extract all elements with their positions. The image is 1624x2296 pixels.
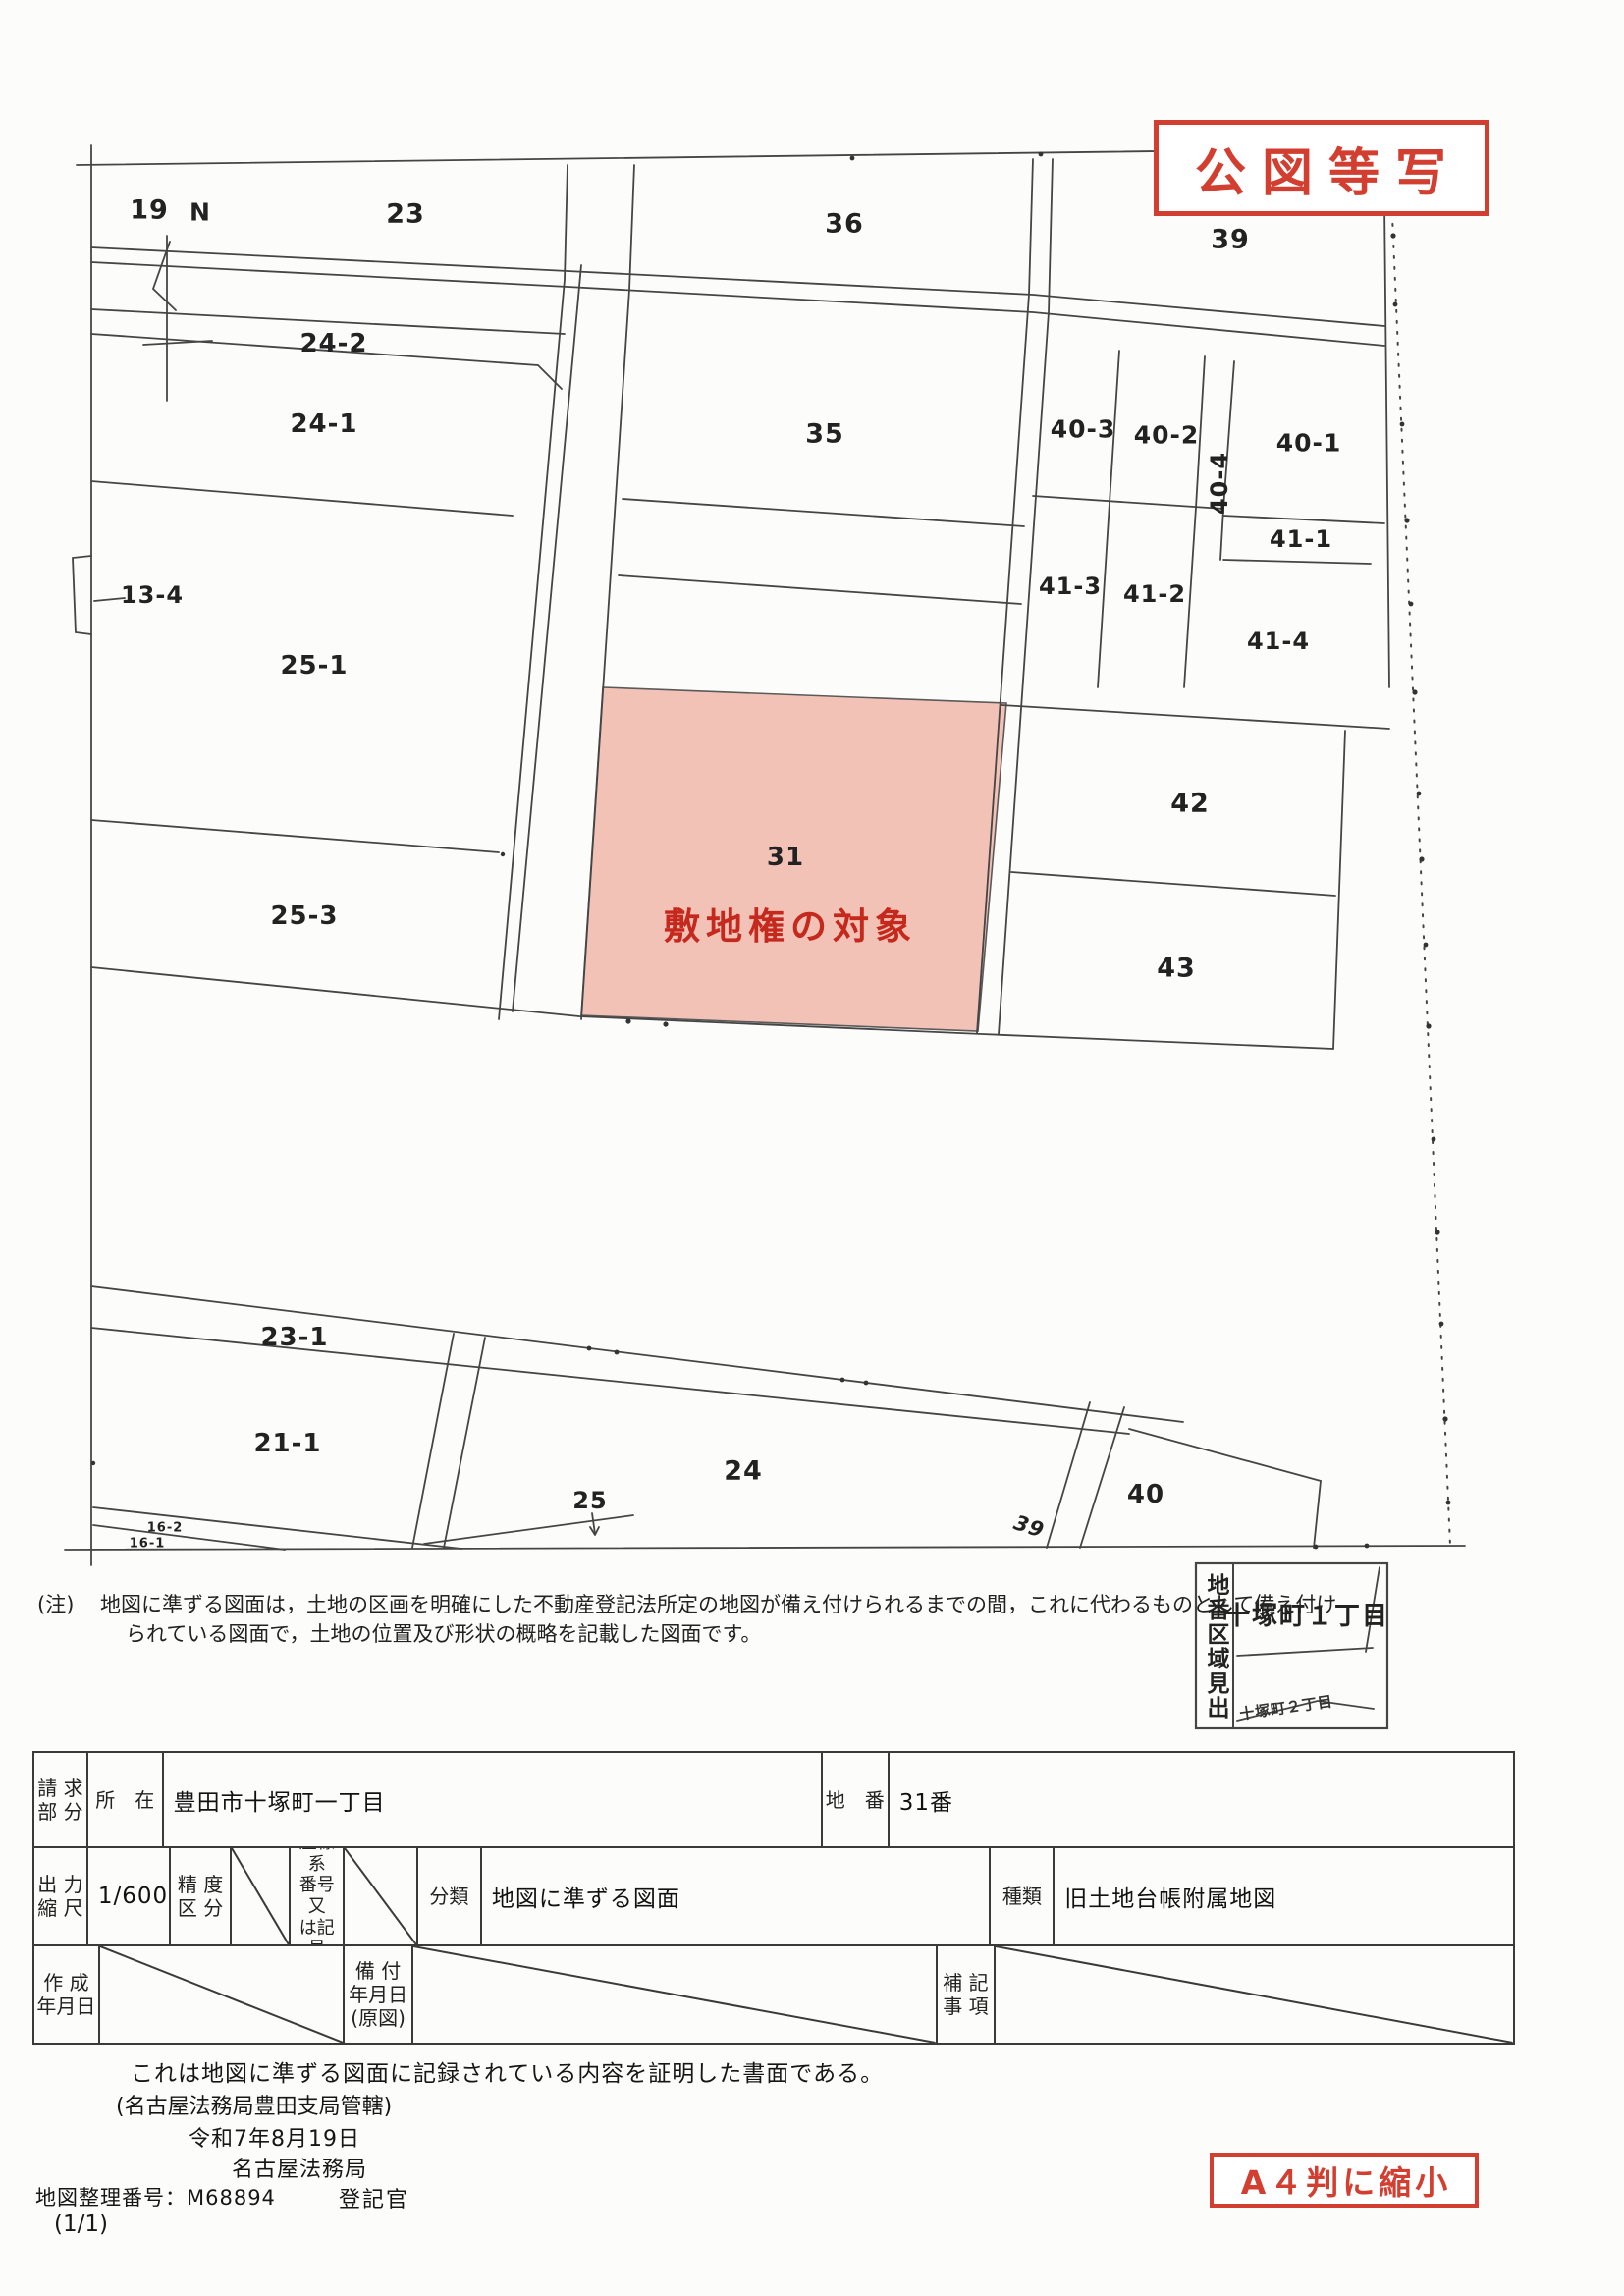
type-label: 種類 [1002, 1885, 1042, 1908]
equipped-date-empty-cell [413, 1946, 938, 2043]
remarks-label: 補 記 事 項 [943, 1971, 988, 2018]
public-map-copy-stamp: 公図等写 [1154, 120, 1489, 216]
location-value: 豊田市十塚町一丁目 [164, 1753, 823, 1846]
parcel-13-4-notch [73, 556, 91, 634]
parcel-label-13-4: 13-4 [121, 583, 184, 607]
parcel-label-N: N [189, 200, 211, 225]
coordinate-system-label: 座標系 番号又 は記号 [291, 1848, 343, 1944]
parcel-label-39: 39 [1211, 227, 1250, 253]
parcel-label-40-3: 40-3 [1051, 417, 1116, 442]
parcel-label-24-2: 24-2 [299, 331, 367, 356]
certification-statement: これは地図に準ずる図面に記録されている内容を証明した書面である。 [131, 2054, 884, 2088]
parcel-label-25-1: 25-1 [280, 653, 348, 679]
parcel-label-40-1: 40-1 [1276, 431, 1342, 456]
table-row-location: 請 求 部 分 所 在 豊田市十塚町一丁目 地 番 31番 [34, 1753, 1513, 1846]
remarks-empty-cell [996, 1946, 1513, 2043]
parcel-label-25: 25 [572, 1489, 607, 1512]
parcel-25-pointer [590, 1513, 599, 1535]
classification-label: 分類 [429, 1885, 468, 1908]
map-metadata-table: 請 求 部 分 所 在 豊田市十塚町一丁目 地 番 31番 出 力 縮 尺 1/… [32, 1751, 1515, 2045]
parcel-label-36: 36 [825, 211, 864, 238]
note-line2: られている図面で，土地の位置及び形状の概略を記載した図面です。 [37, 1620, 1530, 1650]
certification-date: 令和7年8月19日 [189, 2121, 360, 2153]
parcel-label-31: 31 [767, 845, 804, 870]
note-paragraph: (注) 地図に準ずる図面は，土地の区画を明確にした不動産登記法所定の地図が備え付… [37, 1591, 1530, 1650]
parcel-label-41-4: 41-4 [1247, 629, 1310, 653]
page-indicator: (1/1) [54, 2212, 108, 2237]
parcel-label-35: 35 [805, 421, 844, 448]
parcel-label-16-2: 16-2 [147, 1522, 184, 1535]
creation-date-empty-cell [100, 1946, 345, 2043]
output-scale-value: 1/600 [88, 1848, 171, 1944]
parcel-number-label: 地 番 [826, 1788, 885, 1812]
parcel-label-40-2: 40-2 [1134, 423, 1200, 448]
parcel-label-21-1: 21-1 [253, 1431, 321, 1456]
type-value: 旧土地台帳附属地図 [1055, 1848, 1513, 1944]
cadastral-map-certificate-page: 十塚町１丁目 地番区域見出 十塚町２丁目 19N23363924-224-135… [0, 0, 1624, 2296]
parcel-label-41-2: 41-2 [1123, 582, 1186, 606]
parcel-label-41-3: 41-3 [1039, 574, 1102, 598]
table-row-dates: 作 成 年月日 備 付 年月日 (原図) 補 記 事 項 [34, 1944, 1513, 2043]
coordinate-empty-cell [345, 1848, 418, 1944]
map-border-right [1389, 148, 1450, 1546]
parcel-label-23: 23 [386, 201, 425, 228]
parcel-label-40: 40 [1127, 1482, 1164, 1507]
equipped-date-label: 備 付 年月日 (原図) [349, 1959, 407, 2030]
parcel-label-24: 24 [724, 1458, 763, 1485]
location-label: 所 在 [95, 1788, 154, 1812]
parcel-label-40-4: 40-4 [1208, 452, 1231, 515]
creation-date-label: 作 成 年月日 [36, 1971, 95, 2018]
precision-label: 精 度 区 分 [178, 1873, 223, 1920]
note-line1: 地図に準ずる図面は，土地の区画を明確にした不動産登記法所定の地図が備え付けられる… [100, 1591, 1336, 1620]
table-row-scale: 出 力 縮 尺 1/600 精 度 区 分 座標系 番号又 は記号 分類 地図に… [34, 1846, 1513, 1944]
parcel-label-41-1: 41-1 [1270, 527, 1332, 551]
parcel-label-25-3: 25-3 [270, 903, 338, 929]
note-prefix: (注) [37, 1591, 100, 1620]
map-management-number: 地図整理番号：M68894 [35, 2182, 276, 2212]
legal-affairs-bureau: 名古屋法務局 [232, 2152, 367, 2183]
parcel-label-23-1: 23-1 [260, 1325, 328, 1350]
parcel-label-43: 43 [1157, 956, 1196, 982]
parcel-label-42: 42 [1170, 791, 1210, 817]
a4-reduction-stamp: A４判に縮小 [1210, 2153, 1479, 2208]
site-right-annotation: 敷地権の対象 [664, 897, 917, 950]
classification-value: 地図に準ずる図面 [482, 1848, 992, 1944]
request-part-label: 請 求 部 分 [37, 1777, 82, 1824]
jurisdiction-note: (名古屋法務局豊田支局管轄) [116, 2089, 392, 2120]
north-arrow-icon [143, 236, 212, 401]
registrar-label: 登記官 [339, 2182, 409, 2214]
parcel-label-19: 19 [130, 197, 169, 224]
parcel-number-value: 31番 [890, 1753, 1513, 1846]
parcel-label-24-1: 24-1 [290, 411, 357, 437]
output-scale-label: 出 力 縮 尺 [37, 1873, 82, 1920]
precision-empty-cell [232, 1848, 291, 1944]
parcel-label-16-1: 16-1 [130, 1538, 166, 1551]
